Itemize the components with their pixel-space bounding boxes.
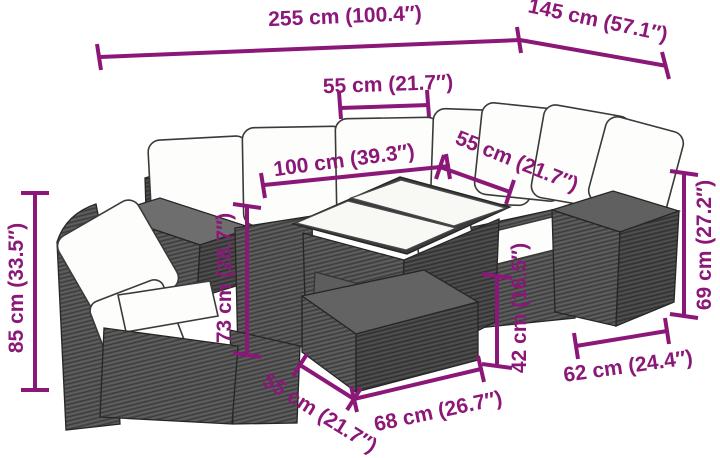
dimension-tick bbox=[665, 318, 669, 344]
dimension-label: 73 cm (28.7″) bbox=[213, 213, 236, 343]
dimension-label: 145 cm (57.1″) bbox=[526, 0, 670, 46]
dimension-label: 42 cm (16.5″) bbox=[508, 243, 531, 373]
dimension-diagram-svg: 255 cm (100.4″) 145 cm (57.1″) 55 cm (21… bbox=[0, 0, 720, 458]
dimension-backrest-height: 85 cm (33.5″) bbox=[5, 193, 49, 390]
dimension-tick bbox=[97, 44, 101, 70]
dimension-tick bbox=[670, 314, 698, 318]
dimension-side-table-width: 62 cm (24.4″) bbox=[562, 318, 694, 387]
dimension-overall-width: 255 cm (100.4″) bbox=[97, 2, 521, 70]
dimension-label: 68 cm (26.7″) bbox=[372, 387, 504, 437]
dimension-back-section-width: 55 cm (21.7″) bbox=[323, 71, 454, 119]
right-side-table bbox=[552, 191, 679, 326]
dimension-label: 55 cm (21.7″) bbox=[323, 71, 454, 99]
dimension-label: 255 cm (100.4″) bbox=[268, 2, 422, 31]
dimension-line bbox=[520, 40, 667, 66]
dimension-label: 69 cm (27.2″) bbox=[693, 180, 716, 310]
dimension-label: 62 cm (24.4″) bbox=[562, 346, 694, 387]
dimension-line bbox=[100, 40, 520, 57]
dimension-line bbox=[340, 105, 429, 108]
dimension-diagram: 255 cm (100.4″) 145 cm (57.1″) 55 cm (21… bbox=[0, 0, 720, 458]
dimension-label: 85 cm (33.5″) bbox=[5, 223, 28, 353]
dimension-line bbox=[576, 331, 667, 346]
dimension-tick bbox=[574, 333, 578, 359]
dimension-overall-depth: 145 cm (57.1″) bbox=[520, 0, 670, 79]
